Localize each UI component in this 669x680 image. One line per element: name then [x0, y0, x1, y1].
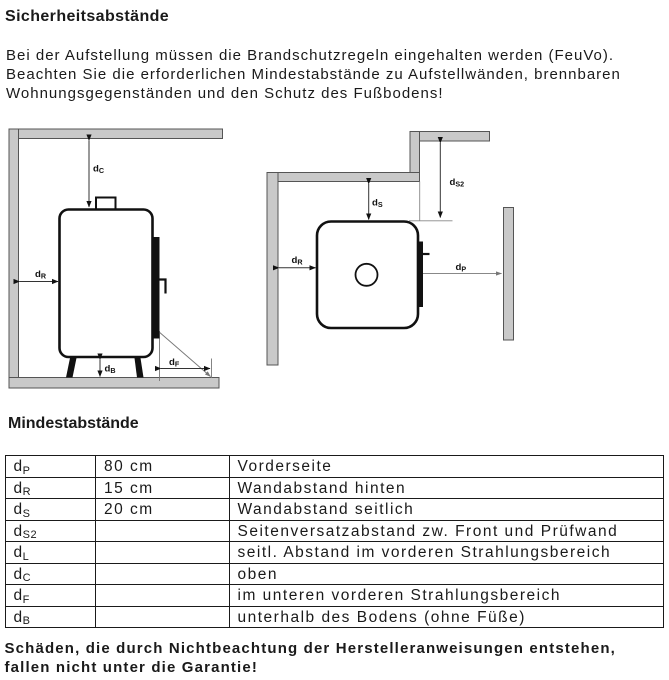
svg-text:dF: dF — [169, 357, 180, 369]
svg-text:dR: dR — [35, 269, 47, 281]
svg-text:dC: dC — [93, 164, 104, 176]
svg-text:dP: dP — [456, 262, 467, 274]
svg-text:dR: dR — [292, 255, 304, 267]
svg-text:dB: dB — [105, 363, 116, 375]
svg-text:dS2: dS2 — [450, 177, 465, 189]
svg-text:dS: dS — [372, 197, 383, 209]
